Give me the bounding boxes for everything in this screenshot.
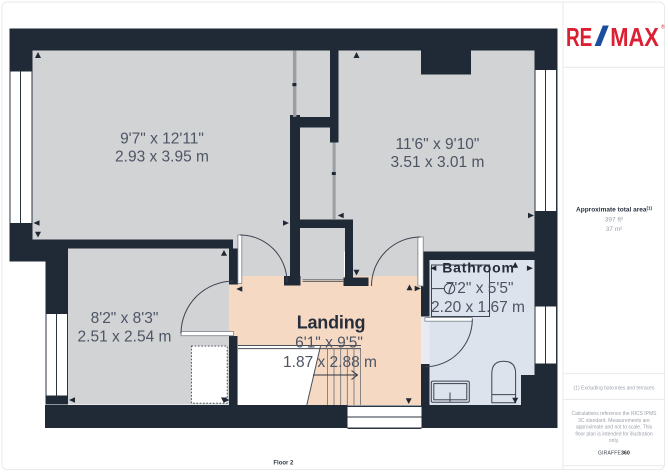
svg-text:3C standard. Measurements are: 3C standard. Measurements are: [578, 418, 650, 424]
svg-text:floor plan is intended for ill: floor plan is intended for illustration: [575, 431, 652, 437]
svg-text:Bathroom: Bathroom: [442, 260, 515, 276]
svg-text:11'6" x 9'10": 11'6" x 9'10": [395, 136, 479, 153]
svg-text:37 m²: 37 m²: [606, 226, 623, 233]
svg-text:9'7" x 12'11": 9'7" x 12'11": [120, 131, 204, 148]
svg-text:2.51 x 2.54 m: 2.51 x 2.54 m: [78, 329, 172, 346]
svg-text:Landing: Landing: [297, 312, 366, 332]
svg-text:GIRAFFE360: GIRAFFE360: [598, 451, 630, 457]
svg-text:only.: only.: [609, 438, 619, 444]
svg-text:®: ®: [661, 24, 665, 31]
svg-text:Floor 2: Floor 2: [273, 461, 294, 467]
svg-text:2.93 x 3.95 m: 2.93 x 3.95 m: [115, 149, 209, 166]
svg-text:MAX: MAX: [610, 22, 659, 52]
svg-text:(1) Excluding balconies and te: (1) Excluding balconies and terraces: [574, 386, 655, 392]
svg-text:Approximate total area(1): Approximate total area(1): [576, 206, 652, 214]
svg-text:2.20 x 1.67 m: 2.20 x 1.67 m: [431, 299, 525, 316]
svg-text:6'1" x 9'5": 6'1" x 9'5": [295, 335, 363, 352]
svg-text:RE: RE: [566, 22, 592, 52]
svg-text:8'2" x 8'3": 8'2" x 8'3": [91, 310, 159, 327]
svg-text:approximate and not to scale.: approximate and not to scale. This: [576, 425, 653, 431]
svg-text:3.51 x 3.01 m: 3.51 x 3.01 m: [390, 154, 484, 171]
svg-text:397 ft²: 397 ft²: [605, 217, 624, 224]
svg-text:7'2" x 5'5": 7'2" x 5'5": [446, 280, 514, 297]
svg-text:1.87 x 2.88 m: 1.87 x 2.88 m: [283, 354, 377, 371]
svg-text:Calculations reference the RIC: Calculations reference the RICS IPMS: [571, 411, 657, 417]
